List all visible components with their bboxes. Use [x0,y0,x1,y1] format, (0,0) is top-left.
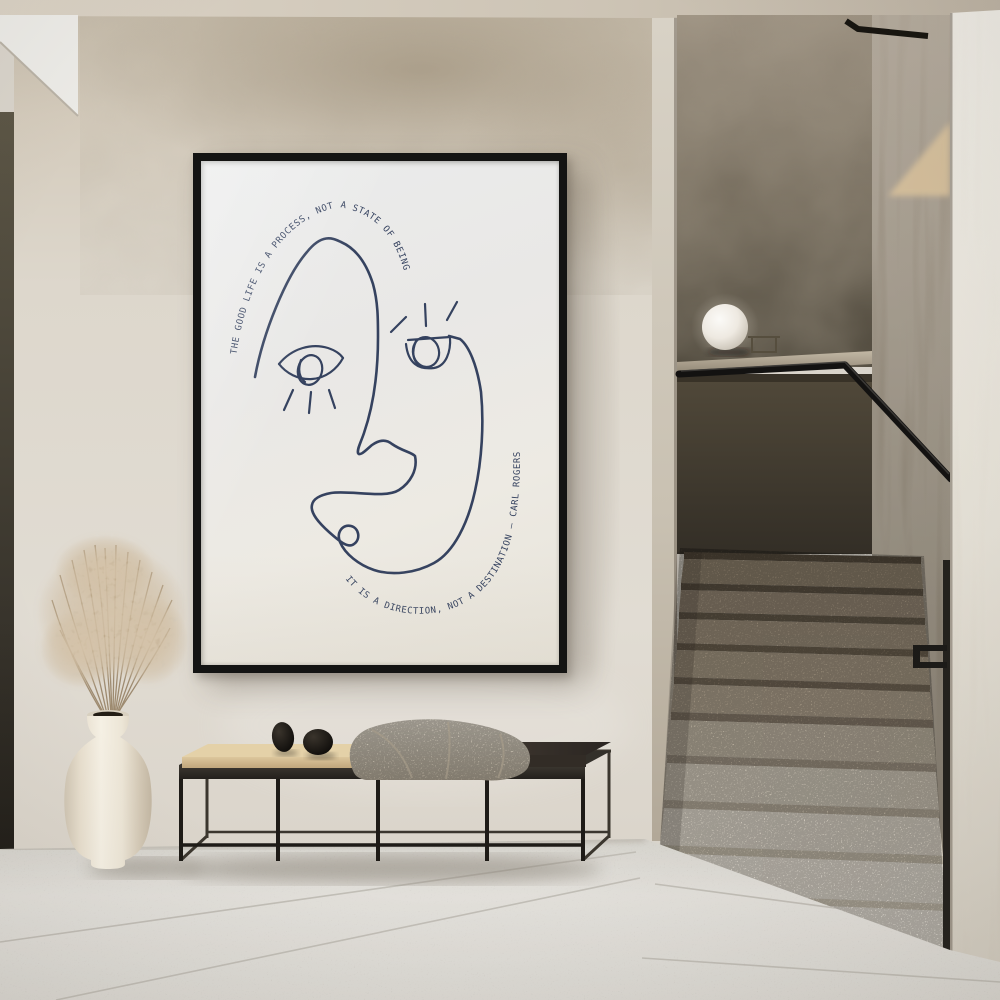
foreground-wall [950,10,1000,966]
frame-cast-shadow [562,180,614,680]
poster-artwork: THE GOOD LIFE IS A PROCESS, NOT A STATE … [201,161,559,665]
right-eye-ray [425,304,426,326]
quote-top: THE GOOD LIFE IS A PROCESS, NOT A STATE … [229,200,410,355]
quote-bottom-with-author: IT IS A DIRECTION, NOT A DESTINATION — C… [343,451,523,617]
face-contour-line [255,238,482,573]
left-eye-lash [329,390,335,408]
stair-edge-trim [943,560,951,950]
left-eye-lash [284,390,293,410]
stairwell [650,15,951,964]
left-eye [279,346,343,413]
poster-quote-bottom-text: IT IS A DIRECTION, NOT A DESTINATION — C… [343,451,523,617]
poster-frame: THE GOOD LIFE IS A PROCESS, NOT A STATE … [193,153,567,673]
pebble-decor [303,729,333,755]
right-eye-ray [391,317,406,332]
grass-plumes [28,528,206,698]
poster-quote-top-text: THE GOOD LIFE IS A PROCESS, NOT A STATE … [229,200,410,355]
left-eye-lash [309,392,311,413]
parapet-wall [677,374,872,554]
poster-paper: THE GOOD LIFE IS A PROCESS, NOT A STATE … [201,161,559,665]
one-line-face-drawing [255,238,482,573]
right-wall-streaks [950,10,1000,966]
interior-photo: THE GOOD LIFE IS A PROCESS, NOT A STATE … [0,0,1000,1000]
left-eye-lower-lid [279,358,343,379]
right-eye-ray [447,302,457,320]
globe-lamp [702,304,748,350]
wall-corner-edge [950,13,953,952]
left-door-trim [0,112,14,853]
right-eye [391,302,457,369]
bench-floor-shadow [178,855,602,883]
